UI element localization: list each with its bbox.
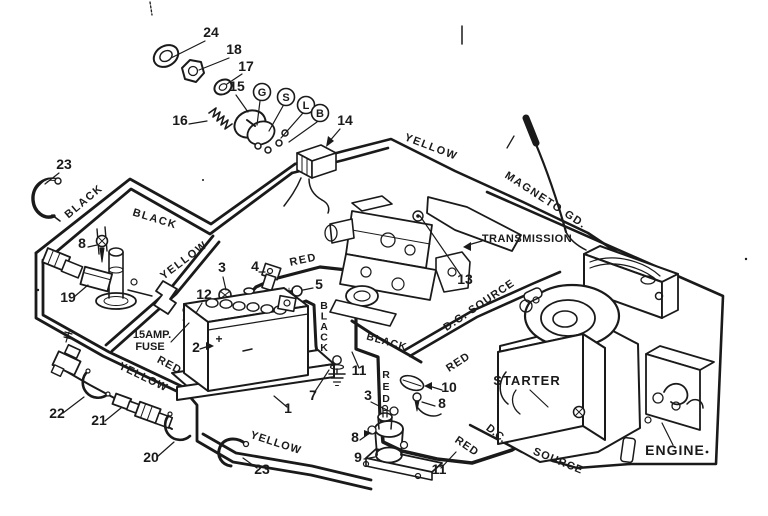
screw-8-right	[413, 393, 421, 411]
part-11-lower-label: 11	[432, 461, 447, 477]
part-14-label: 14	[337, 112, 353, 128]
part-21-label: 21	[91, 412, 107, 428]
part-24-label: 24	[203, 24, 219, 40]
part-4-label: 4	[251, 258, 259, 274]
part-23-bottom-label: 23	[254, 461, 270, 477]
solenoid-9	[364, 406, 443, 481]
part-7-label: 7	[309, 387, 317, 403]
wiring-diagram-canvas: 2418171516GSLB1423BLACKBLACKYELLOW819312…	[0, 0, 768, 516]
battery-positive-post	[244, 288, 254, 294]
wire-red-lower-label: RED	[452, 434, 480, 459]
part-3-top-label: 3	[218, 259, 226, 275]
arrowhead-transmission	[463, 242, 471, 251]
nut-18	[182, 60, 204, 82]
part-17-label: 17	[238, 58, 254, 74]
connector-20	[135, 402, 172, 428]
part-8-right-label: 8	[438, 395, 446, 411]
part-11-upper-label: 11	[352, 362, 367, 378]
part-5-label: 5	[315, 276, 323, 292]
spring-16	[209, 108, 232, 129]
terminal-g-label: G	[258, 87, 267, 99]
terminal-l-label: L	[303, 100, 310, 112]
mount-foot	[620, 437, 635, 462]
part-16-label: 16	[172, 112, 188, 128]
wire-magneto-gd-label: MAGNETO GD.	[502, 170, 588, 232]
arrowhead-10	[424, 382, 432, 390]
part-2-label: 2	[192, 339, 200, 355]
wire-black-2-label: BLACK	[131, 207, 178, 232]
engine-label: ENGINE	[645, 442, 705, 458]
battery-plus-label: +	[215, 332, 222, 346]
part-22-label: 22	[49, 405, 65, 421]
part-8-solenoid-label: 8	[351, 429, 359, 445]
part-12-label: 12	[196, 286, 212, 302]
terminal-22	[50, 332, 85, 381]
part-3-mid-label: 3	[364, 387, 372, 403]
wire-red-left-label: RED	[155, 354, 184, 377]
part-18-label: 18	[226, 41, 242, 57]
grommet-24	[150, 41, 183, 72]
connector-14	[297, 145, 336, 178]
starter-motor	[498, 334, 605, 444]
wire-yellow-3-label: YELLOW	[249, 429, 303, 457]
wire-black-vertical-label: BLACK	[320, 300, 328, 354]
part-10-label: 10	[441, 379, 457, 395]
battery-front	[208, 306, 308, 391]
fuse-label-line1: 15AMP.	[133, 329, 171, 341]
wire-red-mid-label: RED	[444, 350, 473, 374]
battery-terminal-clamp	[278, 296, 296, 312]
terminal-b-label: B	[316, 108, 324, 120]
wiring-diagram-page: 2418171516GSLB1423BLACKBLACKYELLOW819312…	[0, 0, 768, 516]
wire-red-top-label: RED	[289, 251, 319, 269]
part-23-top-label: 23	[56, 156, 72, 172]
circuit-breaker-10	[399, 373, 426, 393]
transmission	[325, 196, 521, 326]
clamp-23-top	[33, 178, 61, 221]
fuse-label-line2: FUSE	[135, 341, 164, 353]
part-8-left-label: 8	[78, 235, 86, 251]
wire-black-3-label: BLACK	[365, 331, 408, 354]
terminal-s-label: S	[282, 92, 289, 104]
part-9-label: 9	[354, 449, 362, 465]
part-19-label: 19	[60, 289, 76, 305]
dashed-tick	[150, 2, 152, 15]
part-1-label: 1	[284, 400, 292, 416]
wire-red-vertical-label: RED	[382, 369, 390, 405]
starter-label: STARTER	[493, 373, 560, 388]
part-13-label: 13	[457, 271, 473, 287]
transmission-label: TRANSMISSION	[482, 233, 572, 245]
washer-3-mid	[390, 407, 398, 415]
part-15-label: 15	[229, 78, 245, 94]
part-20-label: 20	[143, 449, 159, 465]
